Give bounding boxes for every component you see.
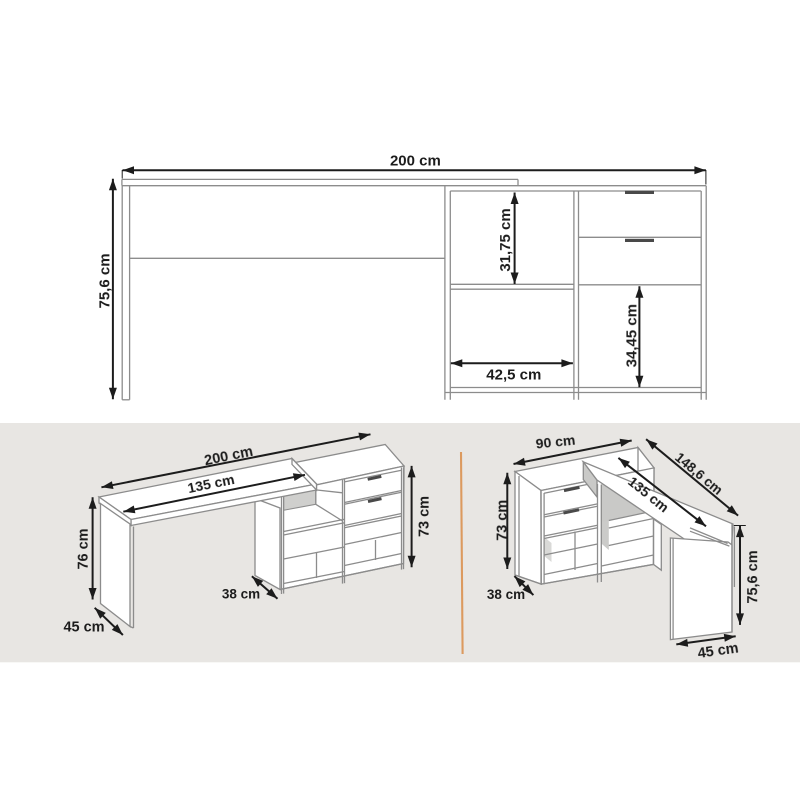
svg-text:38 cm: 38 cm	[222, 586, 260, 601]
svg-text:76 cm: 76 cm	[76, 528, 92, 569]
svg-text:42,5 cm: 42,5 cm	[486, 367, 541, 384]
svg-text:34,45 cm: 34,45 cm	[623, 304, 640, 367]
svg-text:31,75 cm: 31,75 cm	[497, 208, 514, 271]
svg-text:75,6 cm: 75,6 cm	[96, 253, 113, 308]
svg-text:45 cm: 45 cm	[63, 620, 104, 636]
svg-text:75,6 cm: 75,6 cm	[745, 550, 761, 603]
svg-text:73 cm: 73 cm	[417, 496, 433, 537]
svg-text:200 cm: 200 cm	[390, 153, 441, 170]
svg-text:73 cm: 73 cm	[495, 500, 511, 541]
svg-text:38 cm: 38 cm	[487, 587, 525, 602]
